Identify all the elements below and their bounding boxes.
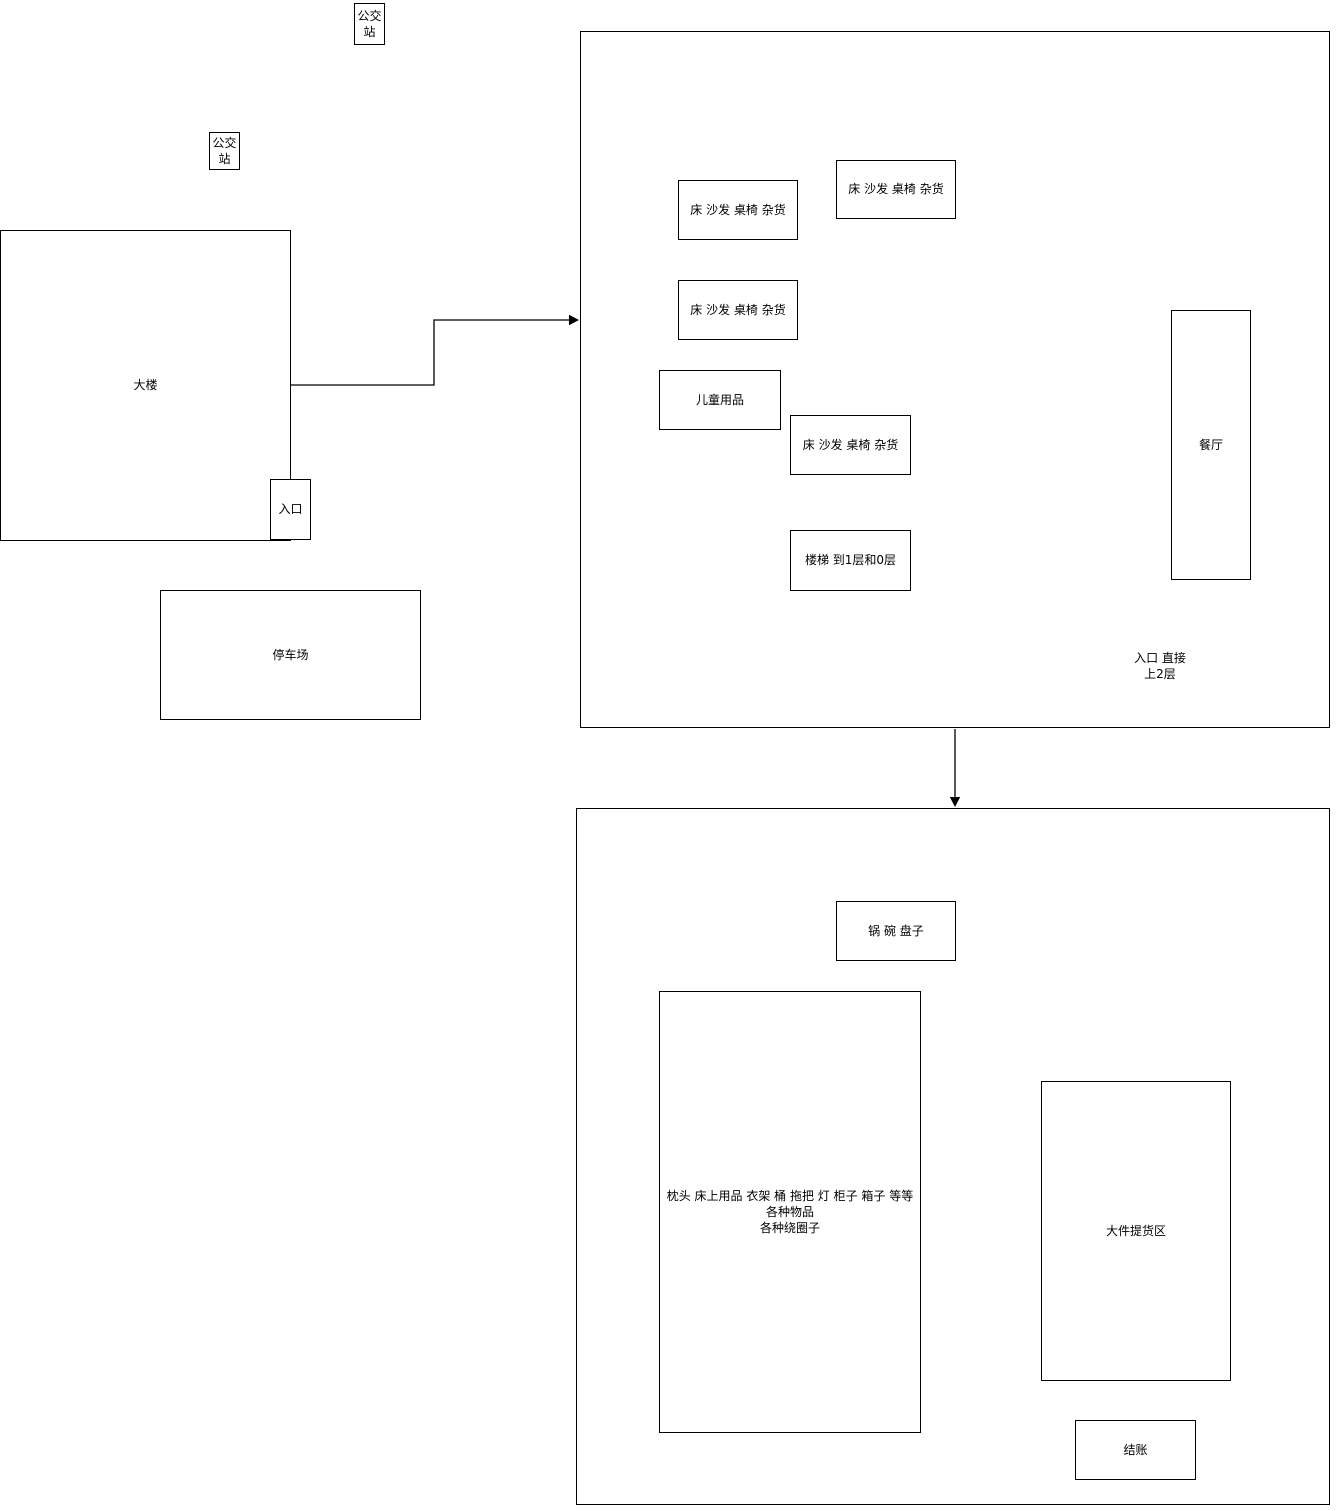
upper-entrance-note: 入口 直接 上2层 [1100, 650, 1220, 682]
area-bed-sofa-2-label: 床 沙发 桌椅 杂货 [848, 181, 943, 197]
area-kitchenware: 锅 碗 盘子 [836, 901, 956, 961]
building-box: 大楼 [0, 230, 291, 541]
area-bed-sofa-3-label: 床 沙发 桌椅 杂货 [690, 302, 785, 318]
bus-stop-1-label: 公交站 [357, 8, 382, 40]
connector-arrow-building-to-upper-floor [291, 315, 579, 385]
connector-arrow-upper-to-lower-floor [950, 729, 960, 807]
diagram-canvas: 公交站 公交站 大楼 入口 停车场 床 沙发 桌椅 杂货 床 沙发 桌椅 杂货 … [0, 0, 1337, 1511]
bus-stop-1: 公交站 [354, 3, 385, 45]
parking-label: 停车场 [272, 647, 308, 663]
area-bed-sofa-3: 床 沙发 桌椅 杂货 [678, 280, 798, 340]
area-stairs: 楼梯 到1层和0层 [790, 530, 911, 591]
building-entrance-label: 入口 [278, 501, 302, 517]
area-bed-sofa-4-label: 床 沙发 桌椅 杂货 [803, 437, 898, 453]
area-bed-sofa-1-label: 床 沙发 桌椅 杂货 [690, 202, 785, 218]
area-bed-sofa-4: 床 沙发 桌椅 杂货 [790, 415, 911, 475]
area-checkout: 结账 [1075, 1420, 1196, 1480]
area-household-goods-label: 枕头 床上用品 衣架 桶 拖把 灯 柜子 箱子 等等各种物品 各种绕圈子 [662, 1188, 918, 1237]
parking-box: 停车场 [160, 590, 421, 720]
area-bed-sofa-1: 床 沙发 桌椅 杂货 [678, 180, 798, 240]
area-restaurant-label: 餐厅 [1199, 437, 1223, 453]
building-entrance-box: 入口 [270, 479, 311, 540]
area-restaurant: 餐厅 [1171, 310, 1251, 580]
area-kitchenware-label: 锅 碗 盘子 [868, 923, 924, 939]
area-household-goods: 枕头 床上用品 衣架 桶 拖把 灯 柜子 箱子 等等各种物品 各种绕圈子 [659, 991, 921, 1433]
bus-stop-2: 公交站 [209, 132, 240, 170]
area-checkout-label: 结账 [1123, 1442, 1147, 1458]
building-label: 大楼 [133, 377, 157, 393]
area-bulk-pickup: 大件提货区 [1041, 1081, 1231, 1381]
area-bed-sofa-2: 床 沙发 桌椅 杂货 [836, 160, 956, 219]
area-bulk-pickup-label: 大件提货区 [1106, 1223, 1166, 1239]
bus-stop-2-label: 公交站 [212, 135, 237, 167]
area-kids-products: 儿童用品 [659, 370, 781, 430]
area-stairs-label: 楼梯 到1层和0层 [805, 552, 896, 568]
area-kids-products-label: 儿童用品 [696, 392, 744, 408]
